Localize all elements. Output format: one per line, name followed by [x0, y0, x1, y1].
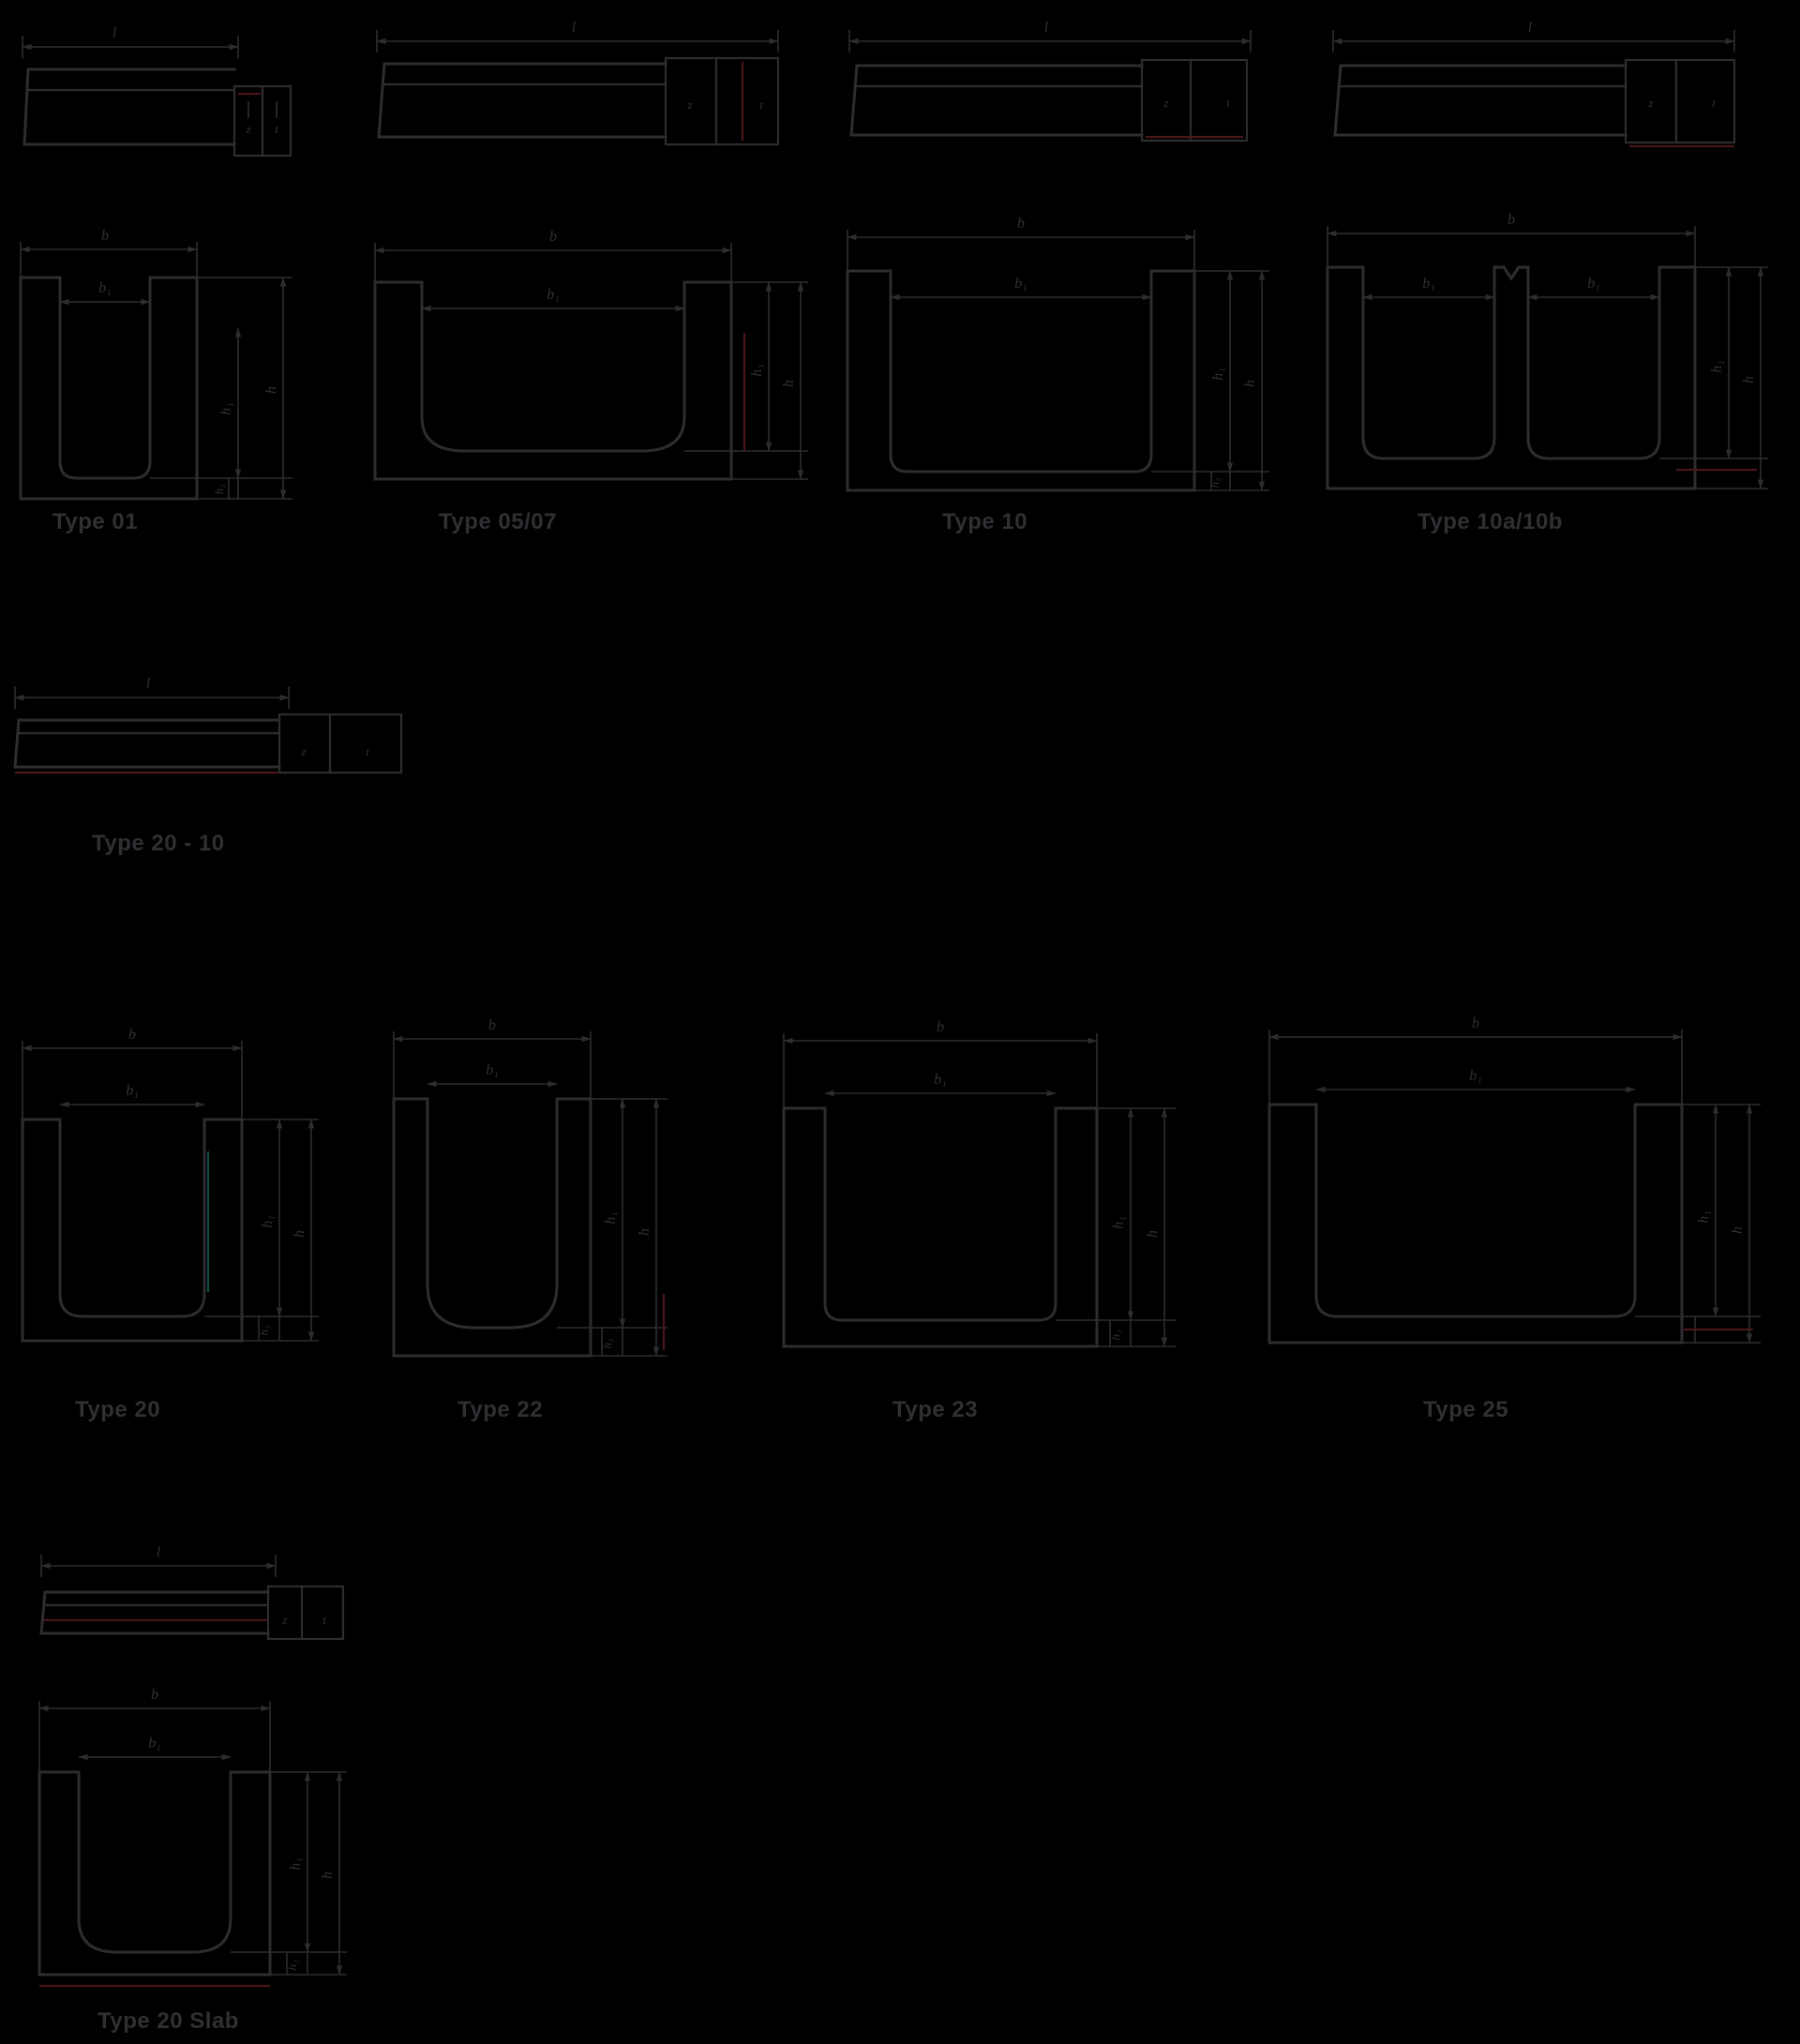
dim-label-width: b [128, 1027, 136, 1043]
figure-type-20-slab-profile: l z t [34, 1540, 362, 1680]
dim-label-joint-a: z [1162, 96, 1168, 110]
profile-body [851, 66, 1142, 135]
caption-type-01: Type 01 [52, 509, 138, 535]
joint-box: z t [234, 86, 291, 156]
profile-body [41, 1592, 268, 1633]
dim-label-length: l [1044, 20, 1049, 36]
dim-label-inner-height: h₁ [603, 1211, 619, 1225]
dim-label-width: b [937, 1019, 944, 1035]
inner-width-dimension: b₁ [1316, 1068, 1635, 1090]
dim-label-inner-height: h₁ [218, 402, 234, 415]
dim-label-inner-height: h₁ [260, 1215, 276, 1228]
dim-label-height: h [1145, 1230, 1161, 1238]
trough-outline [39, 1772, 270, 1986]
dim-label-inner-width: b₁ [934, 1072, 947, 1088]
dim-label-inner-width: b₁ [486, 1062, 499, 1078]
dim-label-inner-height: h₁ [288, 1857, 304, 1871]
trough-outline [394, 1099, 591, 1356]
length-dimension: l [22, 25, 238, 58]
dim-label-height: h [781, 380, 797, 387]
figure-type-20-cross-section: b b₁ h₁ [17, 1011, 345, 1386]
dim-label-inner-height: h₁ [1111, 1216, 1127, 1229]
dim-label-height: h [1741, 376, 1757, 383]
figure-type-01-profile: l z t [13, 8, 294, 176]
width-dimension: b [847, 216, 1194, 271]
dim-label-width: b [549, 229, 557, 245]
height-dimensions: h₁ h [1659, 267, 1768, 488]
double-trough-outline [1327, 267, 1695, 488]
caption-type-22: Type 22 [457, 1397, 543, 1423]
inner-width-dimension: b₁ [60, 1083, 204, 1105]
dim-label-base-height: h₂ [1207, 477, 1222, 488]
dim-label-inner-height: h₁ [1696, 1210, 1712, 1224]
width-dimension: b [21, 228, 197, 278]
dim-label-joint-b: t [366, 744, 369, 759]
dim-label-inner-width: b₁ [547, 287, 560, 303]
length-dimension: l [41, 1544, 276, 1577]
width-dimension: b [22, 1027, 242, 1120]
figure-type-05-07-cross-section: b b₁ h₁ h [367, 192, 817, 516]
height-dimensions: h₁ h [1635, 1105, 1761, 1343]
profile-body [1335, 66, 1626, 135]
dim-label-height: h [292, 1230, 307, 1238]
dim-label-joint-a: z [1647, 96, 1653, 110]
inner-width-dimension: b₁ [891, 276, 1151, 297]
profile-body [15, 720, 279, 773]
figure-type-25-cross-section: b b₁ h₁ [1264, 1007, 1770, 1387]
dim-label-inner-width: b₁ [1587, 276, 1600, 292]
inner-width-dimension: b₁ [825, 1072, 1056, 1093]
height-dimensions: h₁ h₂ h [204, 1120, 319, 1341]
dim-label-width: b [1472, 1015, 1479, 1031]
trough-outline [22, 1120, 242, 1341]
figure-type-23-cross-section: b b₁ h₁ h₂ [778, 1007, 1191, 1387]
dim-label-width: b [488, 1017, 496, 1033]
caption-type-20-10: Type 20 - 10 [92, 831, 225, 857]
joint-box: z t [1626, 60, 1734, 146]
inner-width-dimension: b₁ [79, 1736, 231, 1757]
joint-box: z t [666, 58, 778, 144]
dim-label-width: b [1017, 216, 1025, 232]
figure-type-20-slab-cross-section: b b₁ h₁ [34, 1676, 399, 2000]
dim-label-inner-width: b₁ [98, 280, 112, 296]
dim-label-height: h [320, 1871, 336, 1879]
inner-width-dimension: b₁ [60, 280, 150, 302]
dim-label-inner-width: b₁ [1422, 276, 1435, 292]
inner-width-dimension: b₁ [427, 1062, 557, 1084]
height-dimensions: h₁ h₂ h [557, 1099, 667, 1356]
caption-type-05-07: Type 05/07 [439, 509, 557, 535]
dim-label-joint-a: z [281, 1613, 287, 1627]
trough-outline [375, 282, 731, 479]
dim-label-joint-a: z [245, 122, 250, 136]
figure-type-05-07-profile: l z t [367, 4, 789, 187]
dim-label-base-height: h₂ [1108, 1330, 1122, 1341]
width-dimension: b [784, 1019, 1097, 1108]
caption-type-25: Type 25 [1423, 1397, 1508, 1423]
drawing-sheet: l z t b [0, 0, 1800, 2044]
dim-label-width: b [101, 228, 109, 244]
dim-label-joint-b: t [322, 1613, 326, 1627]
dim-label-base-height: h₂ [212, 484, 226, 495]
dim-label-base-height: h₂ [600, 1338, 614, 1349]
caption-type-23: Type 23 [892, 1397, 978, 1423]
dim-label-inner-height: h₁ [1709, 360, 1725, 373]
figure-type-20-10-profile: l z t [7, 673, 425, 814]
height-dimensions: h₁ h₂ h [1151, 271, 1269, 490]
trough-outline [784, 1108, 1097, 1346]
length-dimension: l [1333, 20, 1734, 53]
length-dimension: l [377, 20, 778, 53]
height-dimensions: h₁ h₂ h [1056, 1108, 1176, 1346]
dim-label-joint-b: t [759, 98, 763, 112]
figure-type-10-profile: l z t [840, 4, 1262, 187]
dim-label-height: h [637, 1228, 652, 1236]
figure-type-10-cross-section: b b₁ h₁ h₂ [840, 192, 1281, 516]
dim-label-height: h [263, 386, 279, 394]
width-dimension: b [394, 1017, 591, 1099]
dim-label-length: l [572, 20, 577, 36]
dim-label-width: b [1507, 212, 1515, 228]
joint-box: z t [279, 714, 401, 773]
dim-label-length: l [146, 676, 151, 692]
caption-type-20: Type 20 [75, 1397, 160, 1423]
dim-label-inner-width: b₁ [126, 1083, 139, 1099]
length-dimension: l [849, 20, 1251, 53]
trough-outline [847, 271, 1194, 490]
dim-label-joint-b: t [1226, 96, 1230, 110]
dim-label-inner-height: h₁ [1210, 368, 1226, 381]
figure-type-10a-10b-cross-section: b b₁ b₁ [1320, 192, 1779, 516]
width-dimension: b [39, 1687, 270, 1772]
width-dimension: b [1327, 212, 1695, 267]
trough-outline [21, 278, 197, 499]
dim-label-joint-b: t [1712, 96, 1716, 110]
joint-box: z t [268, 1586, 343, 1639]
dim-label-length: l [112, 25, 117, 41]
dim-label-inner-width: b₁ [148, 1736, 161, 1751]
figure-type-22-cross-section: b b₁ h₁ [386, 1007, 724, 1387]
figure-type-10a-10b-profile: l z t [1324, 4, 1746, 187]
figure-type-01-cross-section: b b₁ h₁ h₂ [13, 188, 304, 511]
dim-label-height: h [1730, 1226, 1746, 1234]
dim-label-inner-width: b₁ [1014, 276, 1027, 292]
joint-box: z t [1142, 60, 1247, 141]
dim-label-inner-width: b₁ [1469, 1068, 1482, 1084]
caption-type-10: Type 10 [942, 509, 1027, 535]
trough-outline [1269, 1105, 1682, 1343]
dim-label-joint-a: z [686, 98, 692, 112]
dim-label-inner-height: h₁ [749, 364, 765, 377]
width-dimension: b [1269, 1015, 1682, 1105]
dim-label-length: l [1528, 20, 1533, 36]
caption-type-10a-10b: Type 10a/10b [1417, 509, 1563, 535]
length-dimension: l [15, 676, 289, 709]
caption-type-20-slab: Type 20 Slab [97, 2008, 239, 2035]
profile-body [24, 69, 234, 144]
dim-label-joint-b: t [275, 122, 278, 136]
dim-label-base-height: h₂ [285, 1960, 299, 1971]
height-dimensions: h₁ h [684, 282, 808, 479]
height-dimensions: h₁ h₂ h [231, 1772, 347, 1975]
height-dimensions: h₁ h₂ h [150, 278, 292, 499]
dim-label-joint-a: z [300, 744, 306, 759]
dim-label-base-height: h₂ [257, 1325, 271, 1336]
dim-label-width: b [151, 1687, 158, 1703]
profile-body [379, 64, 666, 137]
dim-label-height: h [1242, 380, 1258, 387]
inner-width-dimension: b₁ [422, 287, 684, 308]
width-dimension: b [375, 229, 731, 282]
dim-label-length: l [157, 1544, 161, 1560]
